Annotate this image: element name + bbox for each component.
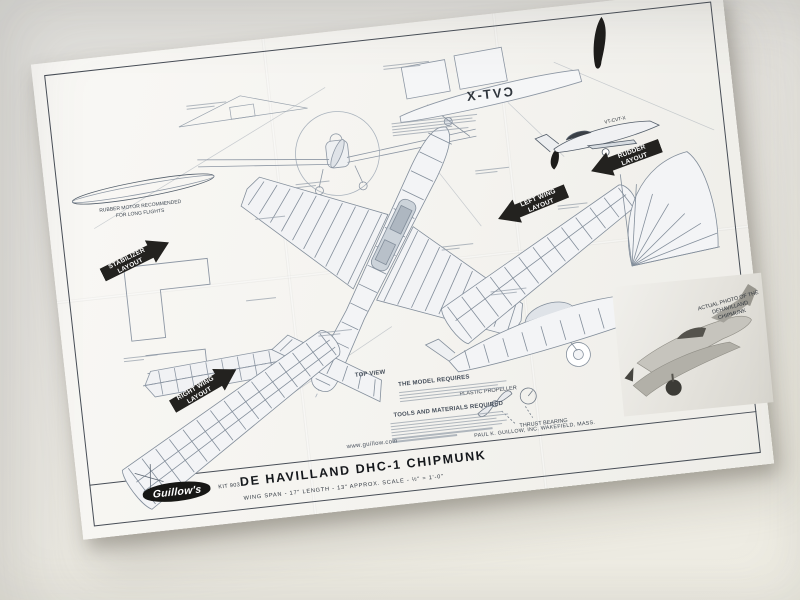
photo-background: CVT-X VT-CVT-X (0, 0, 800, 600)
chipmunk-photo: ACTUAL PHOTO OF THE DEHAVILLAND CHIPMUNK (612, 273, 774, 417)
paper-patterns-drawing (389, 17, 616, 124)
plan-sheet: CVT-X VT-CVT-X (31, 0, 774, 540)
